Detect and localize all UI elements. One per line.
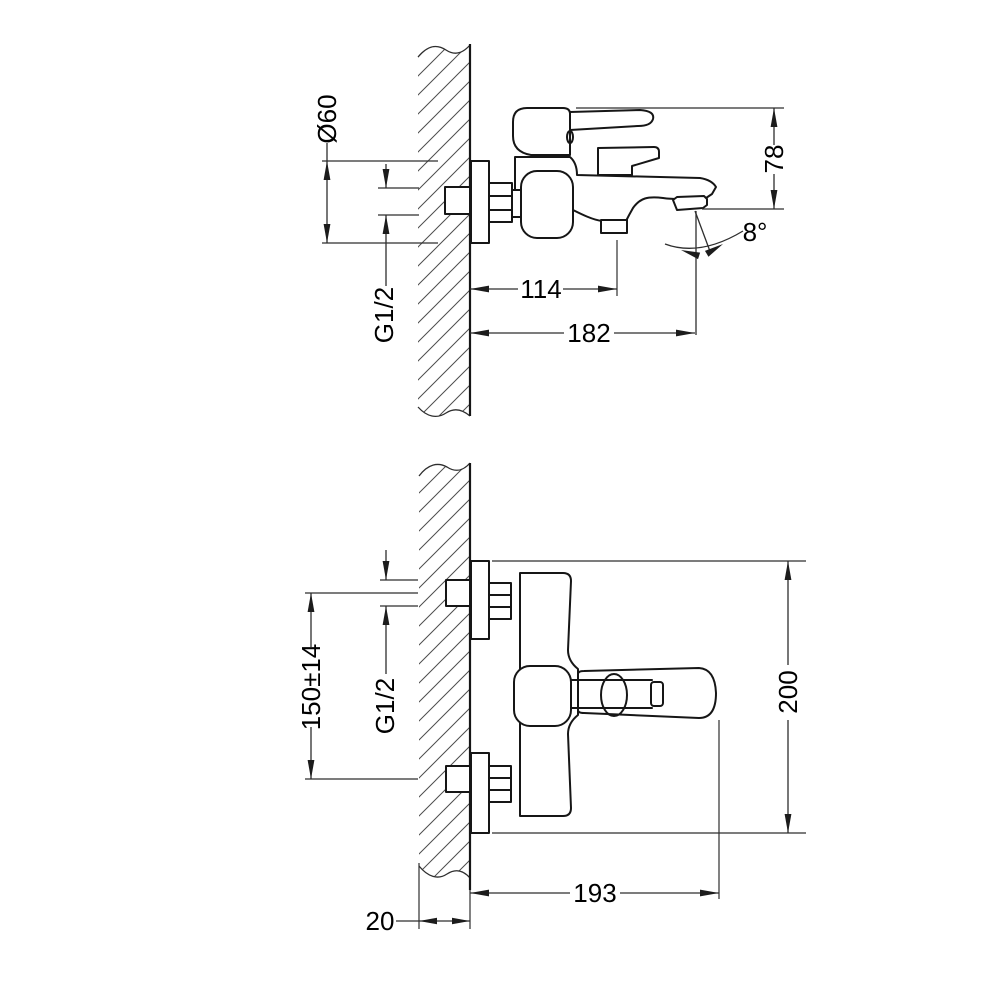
handle-connector — [651, 682, 663, 706]
spout-aerator — [673, 196, 707, 210]
lever-handle — [570, 110, 653, 130]
arrowhead — [771, 108, 778, 127]
front-view: 150±14 G1/2 200 — [296, 463, 806, 936]
supply-pipe-stub-top — [446, 580, 470, 606]
hex-nut-bottom — [489, 766, 511, 802]
dim-label-thread: G1/2 — [369, 287, 399, 343]
hex-nut-top — [489, 583, 511, 619]
arrowhead — [700, 890, 719, 897]
arrowhead — [452, 918, 470, 924]
side-view: Ø60 G1/2 78 — [312, 44, 789, 416]
arrowhead — [785, 814, 792, 833]
faucet-front — [446, 561, 716, 833]
dim-thread-front: G1/2 — [370, 550, 418, 734]
wall-hatching — [418, 45, 470, 416]
arrowhead — [771, 190, 778, 209]
arrowhead — [324, 161, 331, 180]
lever-handle-front — [578, 668, 716, 718]
arrowhead — [308, 593, 315, 612]
arrowhead — [785, 561, 792, 580]
arrowhead — [470, 330, 489, 337]
dim-label-width: 193 — [573, 878, 616, 908]
dim-label-height: 200 — [773, 670, 803, 713]
dim-label-reach: 182 — [567, 318, 610, 348]
valve-body — [521, 171, 573, 238]
wall-section-side — [418, 44, 470, 416]
escutcheon-plate-bottom — [471, 753, 489, 833]
lever-handle-base — [513, 108, 570, 155]
diverter-knob — [598, 147, 659, 175]
dim-label-diameter: Ø60 — [312, 94, 342, 143]
arrowhead — [676, 330, 695, 337]
dim-label-thread: G1/2 — [370, 678, 400, 734]
arrowhead — [705, 241, 725, 257]
arrowhead — [470, 890, 489, 897]
wall-section-front — [419, 463, 470, 929]
wall-hatching — [419, 463, 470, 878]
dim-overall-width: 193 — [470, 720, 719, 908]
dim-spout-angle: 8° — [665, 211, 767, 335]
faucet-side — [445, 108, 716, 243]
arrowhead — [324, 224, 331, 243]
dim-thread-side: G1/2 — [369, 164, 419, 343]
dim-label-wall: 20 — [366, 906, 395, 936]
supply-pipe-stub-bottom — [446, 766, 470, 792]
dim-shower-outlet-offset: 114 — [470, 240, 617, 304]
shower-outlet-stub — [601, 220, 627, 233]
escutcheon-plate-top — [471, 561, 489, 639]
arrowhead — [598, 286, 617, 293]
spout-nose-front — [514, 666, 571, 726]
arrowhead — [383, 215, 390, 234]
hex-nut — [489, 183, 512, 222]
dim-label-centers: 150±14 — [296, 644, 326, 731]
arrowhead — [383, 606, 390, 625]
dim-spout-reach: 182 — [470, 318, 695, 348]
arrowhead — [419, 918, 437, 924]
arrowhead — [470, 286, 489, 293]
dim-label-height: 78 — [759, 145, 789, 174]
dim-wall-section: 20 — [366, 863, 470, 936]
arrowhead — [383, 169, 390, 188]
dim-label-angle: 8° — [743, 217, 768, 247]
arrowhead — [383, 561, 390, 580]
dim-label-offset: 114 — [520, 274, 561, 304]
escutcheon-plate — [471, 161, 489, 243]
arrowhead — [308, 760, 315, 779]
supply-pipe-stub — [445, 187, 470, 214]
drawing-sheet: Ø60 G1/2 78 — [0, 0, 1000, 1000]
technical-drawing: Ø60 G1/2 78 — [0, 0, 1000, 1000]
